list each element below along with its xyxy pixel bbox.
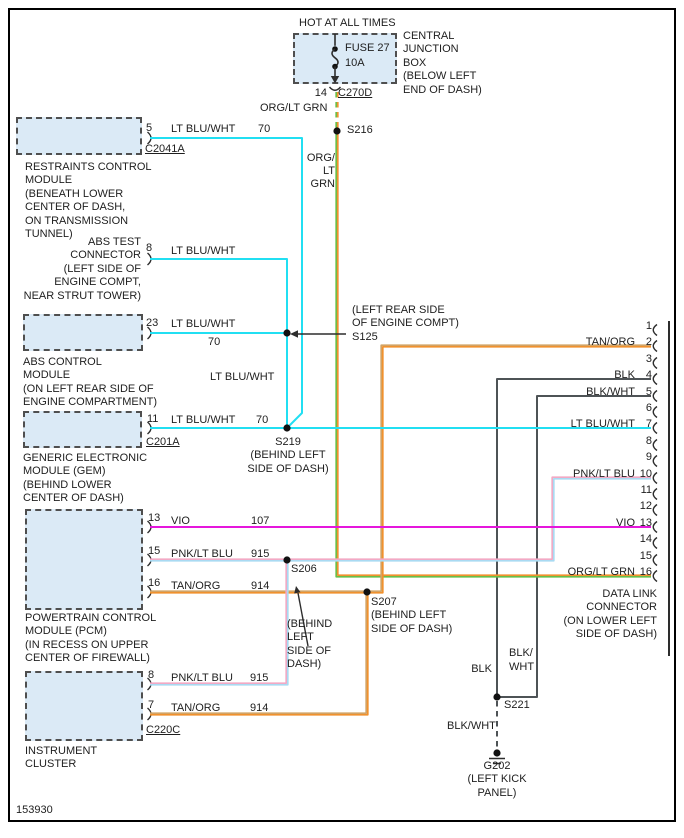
pcm-pin15-label: 15 bbox=[148, 545, 160, 558]
hot-at-all-times-label: HOT AT ALL TIMES bbox=[299, 17, 396, 30]
restraints-connector-label: C2041A bbox=[145, 143, 185, 156]
restraints-wire-label: LT BLU/WHT bbox=[171, 123, 235, 136]
pcm-pin13-label: 13 bbox=[148, 512, 160, 525]
wire-label-ltblu-mid: LT BLU/WHT bbox=[210, 371, 274, 384]
pcm-tan-circuit-label: 914 bbox=[251, 580, 269, 593]
cluster-pin7-label: 7 bbox=[148, 699, 154, 712]
pcm-tan-wire-label: TAN/ORG bbox=[171, 580, 220, 593]
splice-s221-label: S221 bbox=[504, 699, 530, 712]
cluster-pnk-wire-label: PNK/LT BLU bbox=[171, 672, 233, 685]
abs-control-module-label: ABS CONTROL MODULE (ON LEFT REAR SIDE OF… bbox=[23, 356, 157, 410]
dlc-pin-8: 8 bbox=[620, 435, 652, 448]
gem-connector-label: C201A bbox=[146, 436, 180, 449]
gem-pin-label: 11 bbox=[147, 413, 158, 426]
pcm-vio-wire-label: VIO bbox=[171, 515, 190, 528]
dlc-pin-6: 6 bbox=[620, 402, 652, 415]
cluster-pin8-label: 8 bbox=[148, 669, 154, 682]
splice-s216-label: S216 bbox=[347, 124, 373, 137]
pin-14-label: 14 bbox=[307, 87, 327, 100]
dlc-pin-14: 14 bbox=[620, 533, 652, 546]
abs-control-circuit-label: 70 bbox=[208, 336, 220, 349]
dlc-wire-tan-org-label: TAN/ORG bbox=[500, 336, 635, 349]
splice-s207-label: S207 (BEHIND LEFT SIDE OF DASH) bbox=[371, 596, 452, 636]
splice-s206-label: S206 bbox=[291, 563, 317, 576]
gem-wire-label: LT BLU/WHT bbox=[171, 414, 235, 427]
connector-c270d-label: C270D bbox=[338, 87, 372, 100]
dlc-pin-1: 1 bbox=[620, 320, 652, 333]
pcm-pin16-label: 16 bbox=[148, 577, 160, 590]
fuse-label: FUSE 27 10A bbox=[345, 41, 390, 71]
gem-circuit-label: 70 bbox=[256, 414, 268, 427]
dlc-pin-9: 9 bbox=[620, 451, 652, 464]
ground-g202-label: G202 (LEFT KICK PANEL) bbox=[456, 760, 538, 800]
data-link-connector-label: DATA LINK CONNECTOR (ON LOWER LEFT SIDE … bbox=[543, 588, 657, 642]
cluster-tan-circuit-label: 914 bbox=[250, 702, 268, 715]
dlc-wire-vio-label: VIO bbox=[500, 517, 635, 530]
pcm-pnk-circuit-label: 915 bbox=[251, 548, 269, 561]
dlc-wire-ltblu-wht-label: LT BLU/WHT bbox=[500, 418, 635, 431]
gem-module-label: GENERIC ELECTRONIC MODULE (GEM) (BEHIND … bbox=[23, 452, 147, 506]
restraints-circuit-label: 70 bbox=[258, 123, 270, 136]
dlc-pin-arcs bbox=[653, 325, 657, 582]
abs-test-label: ABS TEST CONNECTOR (LEFT SIDE OF ENGINE … bbox=[8, 236, 141, 303]
cluster-pnk-circuit-label: 915 bbox=[250, 672, 268, 685]
dlc-wire-blk-wht-label: BLK/WHT bbox=[500, 386, 635, 399]
dlc-pin-11: 11 bbox=[620, 484, 652, 497]
pcm-pnk-wire-label: PNK/LT BLU bbox=[171, 548, 233, 561]
wire-org-ltgrn-org bbox=[338, 131, 651, 575]
dlc-pin-12: 12 bbox=[620, 500, 652, 513]
dlc-pin-3: 3 bbox=[620, 353, 652, 366]
wire-label-org-ltgrn-stack: ORG/ LT GRN bbox=[299, 152, 335, 191]
pcm-vio-circuit-label: 107 bbox=[251, 515, 269, 528]
wiring-diagram-page: HOT AT ALL TIMES FUSE 27 10A CENTRAL JUN… bbox=[0, 0, 684, 838]
restraints-pin-label: 5 bbox=[146, 122, 152, 135]
cluster-tan-wire-label: TAN/ORG bbox=[171, 702, 220, 715]
wire-label-org-ltgrn-top: ORG/LT GRN bbox=[260, 102, 327, 115]
splice-s219-label: S219 (BEHIND LEFT SIDE OF DASH) bbox=[247, 436, 329, 476]
dlc-pin-15: 15 bbox=[620, 550, 652, 563]
restraints-module-label: RESTRAINTS CONTROL MODULE (BENEATH LOWER… bbox=[25, 161, 152, 241]
abs-test-pin-label: 8 bbox=[146, 242, 152, 255]
central-junction-box-label: CENTRAL JUNCTION BOX (BELOW LEFT END OF … bbox=[403, 30, 482, 97]
wire-ltblu-restraints bbox=[150, 138, 302, 428]
fuse-symbol bbox=[330, 34, 341, 90]
dlc-wire-pnk-ltblu-label: PNK/LT BLU bbox=[500, 468, 635, 481]
pcm-module-label: POWERTRAIN CONTROL MODULE (PCM) (IN RECE… bbox=[25, 612, 156, 666]
figure-number: 153930 bbox=[16, 804, 53, 817]
dlc-wire-blk-label: BLK bbox=[500, 369, 635, 382]
ground-blk-wht-stack-label: BLK/ WHT bbox=[509, 646, 534, 674]
splice-s125-label: (LEFT REAR SIDE OF ENGINE COMPT) S125 bbox=[352, 304, 459, 344]
wire-tan-org-cluster-org bbox=[150, 593, 368, 715]
wire-tan-org-cluster-tan bbox=[150, 593, 366, 713]
abs-control-pin-label: 23 bbox=[146, 317, 158, 330]
splice-s206-location-label: (BEHIND LEFT SIDE OF DASH) bbox=[287, 618, 332, 672]
instrument-cluster-label: INSTRUMENT CLUSTER bbox=[25, 745, 97, 772]
ground-blk-wht-label: BLK/WHT bbox=[447, 720, 492, 733]
abs-test-wire-label: LT BLU/WHT bbox=[171, 245, 235, 258]
abs-control-wire-label: LT BLU/WHT bbox=[171, 318, 235, 331]
cluster-connector-label: C220C bbox=[146, 724, 180, 737]
dlc-wire-org-ltgrn-label: ORG/LT GRN bbox=[500, 566, 635, 579]
ground-blk-label: BLK bbox=[456, 663, 492, 676]
